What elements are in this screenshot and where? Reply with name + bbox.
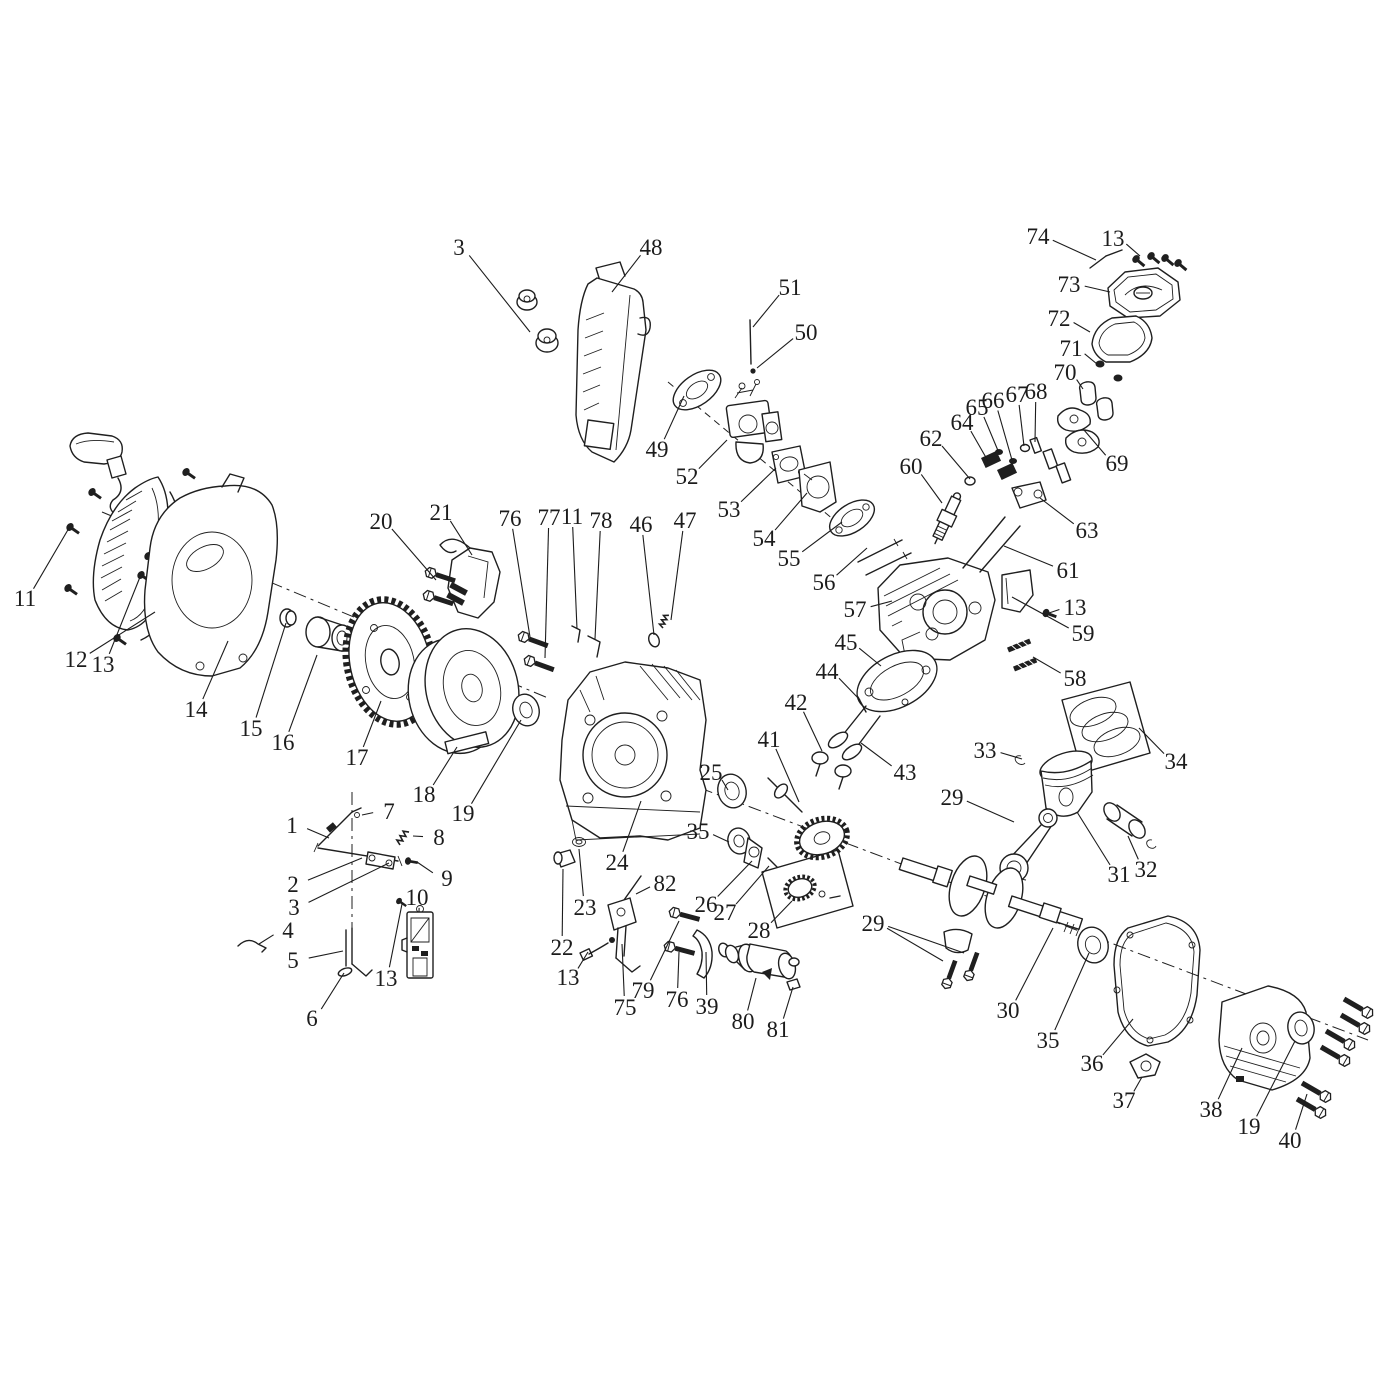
leader-line bbox=[984, 417, 999, 453]
leader-line bbox=[1019, 405, 1024, 446]
solenoid bbox=[402, 906, 433, 979]
part-number-label: 3 bbox=[288, 895, 300, 920]
part-number-label: 29 bbox=[862, 911, 885, 936]
valve-springs-caps bbox=[965, 438, 1071, 485]
part-number-label: 55 bbox=[778, 546, 801, 571]
crankcase bbox=[560, 662, 706, 840]
part-number-label: 33 bbox=[974, 738, 997, 763]
leader-line bbox=[1103, 1019, 1133, 1055]
part-number-label: 69 bbox=[1106, 451, 1129, 476]
part-number-label: 15 bbox=[240, 716, 263, 741]
part-number-label: 64 bbox=[951, 410, 975, 435]
starter-grip bbox=[70, 433, 126, 516]
part-number-label: 21 bbox=[430, 500, 453, 525]
leader-line bbox=[1085, 354, 1097, 364]
part-number-label: 80 bbox=[732, 1009, 755, 1034]
leader-line bbox=[259, 935, 274, 944]
part-number-label: 6 bbox=[306, 1006, 318, 1031]
leader-line bbox=[921, 474, 942, 503]
dipstick-assembly bbox=[608, 876, 641, 972]
part-number-label: 36 bbox=[1081, 1051, 1104, 1076]
part-number-label: 44 bbox=[816, 659, 840, 684]
part-number-label: 32 bbox=[1135, 857, 1158, 882]
part-number-label: 39 bbox=[696, 994, 719, 1019]
leader-line bbox=[706, 952, 707, 995]
diagram-canvas: 3485150741373727170686766656462606963495… bbox=[0, 0, 1377, 1377]
part-number-label: 49 bbox=[646, 437, 669, 462]
rocker-bracket-63 bbox=[1012, 482, 1046, 508]
leader-line bbox=[861, 743, 892, 766]
bracket-39 bbox=[693, 930, 712, 978]
part-number-label: 77 bbox=[538, 505, 561, 530]
part-number-label: 63 bbox=[1076, 518, 1099, 543]
leader-line bbox=[579, 849, 583, 896]
part-number-label: 60 bbox=[900, 454, 923, 479]
pushrods-61 bbox=[963, 517, 1020, 572]
carburetor bbox=[726, 380, 782, 464]
part-number-label: 47 bbox=[674, 508, 697, 533]
part-number-label: 13 bbox=[1102, 226, 1125, 251]
part-number-label: 43 bbox=[894, 760, 917, 785]
part-number-label: 2 bbox=[287, 872, 299, 897]
part-number-label: 31 bbox=[1108, 862, 1131, 887]
camshaft bbox=[768, 778, 853, 864]
leader-line bbox=[389, 904, 402, 967]
leader-line bbox=[1074, 323, 1090, 332]
part-number-label: 24 bbox=[606, 850, 630, 875]
part-number-label: 79 bbox=[632, 978, 655, 1003]
part-number-label: 17 bbox=[346, 745, 369, 770]
leader-line bbox=[362, 813, 373, 815]
leader-line bbox=[450, 521, 472, 555]
part-number-label: 4 bbox=[282, 918, 294, 943]
part-number-label: 25 bbox=[700, 760, 723, 785]
part-number-label: 20 bbox=[370, 509, 393, 534]
part-number-label: 42 bbox=[785, 690, 808, 715]
part-number-label: 48 bbox=[640, 235, 663, 260]
leader-line bbox=[34, 528, 69, 589]
part-number-label: 71 bbox=[1060, 336, 1083, 361]
leader-line bbox=[573, 527, 577, 629]
leader-line bbox=[309, 951, 343, 958]
part-number-label: 34 bbox=[1165, 749, 1189, 774]
leader-line bbox=[753, 295, 779, 327]
part-number-label: 10 bbox=[406, 885, 429, 910]
leader-line bbox=[545, 528, 549, 658]
part-number-label: 9 bbox=[441, 866, 453, 891]
muffler bbox=[576, 262, 650, 462]
crankshaft bbox=[899, 851, 1082, 936]
part-number-label: 72 bbox=[1048, 306, 1071, 331]
part-number-label: 19 bbox=[452, 801, 475, 826]
part-number-label: 1 bbox=[286, 813, 298, 838]
nuts-71-spacers-70 bbox=[1080, 361, 1123, 421]
leader-line bbox=[433, 747, 457, 785]
part-number-label: 11 bbox=[14, 586, 36, 611]
part-number-label: 12 bbox=[65, 647, 88, 672]
ignition-coil bbox=[422, 539, 500, 618]
leader-line bbox=[741, 468, 776, 502]
part-number-label: 73 bbox=[1058, 272, 1081, 297]
part-number-label: 18 bbox=[413, 782, 436, 807]
part-number-label: 38 bbox=[1200, 1097, 1223, 1122]
part-number-label: 67 bbox=[1006, 382, 1029, 407]
leader-line bbox=[859, 648, 881, 666]
part-number-label: 7 bbox=[383, 799, 395, 824]
part-number-label: 74 bbox=[1027, 224, 1051, 249]
part-number-label: 13 bbox=[375, 966, 398, 991]
leader-line bbox=[1012, 597, 1069, 628]
part-number-label: 35 bbox=[687, 819, 710, 844]
starter-motor bbox=[717, 942, 798, 981]
rocker-arms bbox=[1058, 408, 1099, 453]
leader-line bbox=[1053, 240, 1096, 260]
studs-58 bbox=[1007, 638, 1038, 672]
leader-line bbox=[1033, 657, 1061, 673]
leader-line bbox=[636, 887, 650, 894]
leader-line bbox=[309, 863, 389, 902]
part-number-label: 28 bbox=[748, 918, 771, 943]
part-number-label: 76 bbox=[666, 987, 689, 1012]
part-number-label: 76 bbox=[499, 506, 522, 531]
leader-line bbox=[803, 712, 822, 751]
part-number-label: 54 bbox=[753, 526, 777, 551]
leader-line bbox=[392, 529, 436, 580]
part-number-label: 78 bbox=[590, 508, 613, 533]
leader-line bbox=[1139, 728, 1164, 754]
piston-pin bbox=[1101, 800, 1156, 849]
clip-37 bbox=[1130, 1054, 1160, 1078]
air-cleaner-gasket-72 bbox=[1092, 316, 1152, 362]
leader-line bbox=[307, 829, 329, 838]
leader-line bbox=[1128, 836, 1138, 859]
part-number-label: 52 bbox=[676, 464, 699, 489]
part-number-label: 13 bbox=[557, 965, 580, 990]
leader-line bbox=[775, 493, 807, 530]
leader-line bbox=[678, 952, 679, 988]
leader-line bbox=[699, 440, 727, 469]
part-number-label: 59 bbox=[1072, 621, 1095, 646]
leader-line bbox=[942, 446, 970, 479]
rod-cap-and-bolts bbox=[941, 929, 982, 990]
part-number-label: 14 bbox=[185, 697, 209, 722]
leader-line bbox=[1049, 609, 1059, 613]
part-number-label: 37 bbox=[1113, 1088, 1136, 1113]
part-number-label: 5 bbox=[287, 948, 299, 973]
part-number-label: 45 bbox=[835, 630, 858, 655]
part-number-label: 61 bbox=[1057, 558, 1080, 583]
leader-line bbox=[1055, 953, 1089, 1030]
part-number-label: 53 bbox=[718, 497, 741, 522]
part-number-label: 27 bbox=[714, 900, 737, 925]
leader-line bbox=[802, 522, 842, 552]
part-number-label: 23 bbox=[574, 895, 597, 920]
part-number-label: 11 bbox=[561, 504, 583, 529]
part-number-label: 30 bbox=[997, 998, 1020, 1023]
flange-nut-15 bbox=[280, 609, 296, 627]
muffler-nuts bbox=[517, 290, 558, 352]
rod-51-screw-50 bbox=[750, 320, 756, 374]
leader-line bbox=[1035, 402, 1036, 442]
piston bbox=[1036, 745, 1095, 816]
leader-line bbox=[837, 548, 867, 575]
leader-line bbox=[595, 531, 600, 639]
leader-line bbox=[321, 973, 344, 1009]
part-number-label: 40 bbox=[1279, 1128, 1302, 1153]
timing-kit-box bbox=[762, 850, 853, 928]
exploded-parts-diagram: 3485150741373727170686766656462606963495… bbox=[0, 0, 1377, 1377]
part-number-label: 62 bbox=[920, 426, 943, 451]
part-number-label: 56 bbox=[813, 570, 836, 595]
spacer-54 bbox=[799, 462, 836, 512]
part-number-label: 3 bbox=[453, 235, 465, 260]
part-number-label: 41 bbox=[758, 727, 781, 752]
bearing-35-right bbox=[1074, 924, 1112, 967]
part-number-label: 16 bbox=[272, 730, 295, 755]
leader-line bbox=[513, 529, 530, 637]
leader-line bbox=[413, 836, 423, 837]
part-number-label: 50 bbox=[795, 320, 818, 345]
gasket-49 bbox=[666, 362, 727, 418]
leader-line bbox=[967, 801, 1014, 822]
part-number-label: 35 bbox=[1037, 1028, 1060, 1053]
leader-line bbox=[971, 431, 988, 461]
leader-line bbox=[1004, 546, 1053, 566]
leader-line bbox=[308, 858, 362, 880]
leader-line bbox=[650, 921, 679, 980]
leader-line bbox=[1040, 498, 1074, 524]
cylinder-head bbox=[878, 558, 995, 660]
spark-plug bbox=[928, 490, 966, 547]
part-number-label: 51 bbox=[779, 275, 802, 300]
part-number-label: 13 bbox=[1064, 595, 1087, 620]
part-number-label: 19 bbox=[1238, 1114, 1261, 1139]
leader-line bbox=[783, 987, 793, 1019]
leader-line bbox=[748, 978, 756, 1010]
leader-line bbox=[1016, 928, 1053, 1000]
part-number-label: 8 bbox=[433, 825, 445, 850]
leader-line bbox=[713, 835, 729, 842]
leader-line bbox=[562, 869, 563, 936]
part-number-label: 13 bbox=[92, 652, 115, 677]
part-number-label: 58 bbox=[1064, 666, 1087, 691]
leader-line bbox=[1085, 286, 1110, 292]
leader-line bbox=[289, 655, 317, 732]
leader-line bbox=[1126, 244, 1140, 256]
leader-line bbox=[757, 339, 793, 368]
part-number-label: 57 bbox=[844, 597, 867, 622]
part-number-label: 82 bbox=[654, 871, 677, 896]
part-number-label: 22 bbox=[551, 935, 574, 960]
part-number-label: 29 bbox=[941, 785, 964, 810]
leader-line bbox=[887, 928, 943, 961]
part-number-label: 81 bbox=[767, 1017, 790, 1042]
leader-line bbox=[417, 862, 433, 873]
leader-line bbox=[1077, 812, 1110, 865]
leader-line bbox=[643, 535, 654, 635]
part-number-label: 46 bbox=[630, 512, 653, 537]
leader-line bbox=[671, 531, 683, 620]
part-number-label: 70 bbox=[1054, 360, 1077, 385]
leader-line bbox=[771, 901, 792, 923]
